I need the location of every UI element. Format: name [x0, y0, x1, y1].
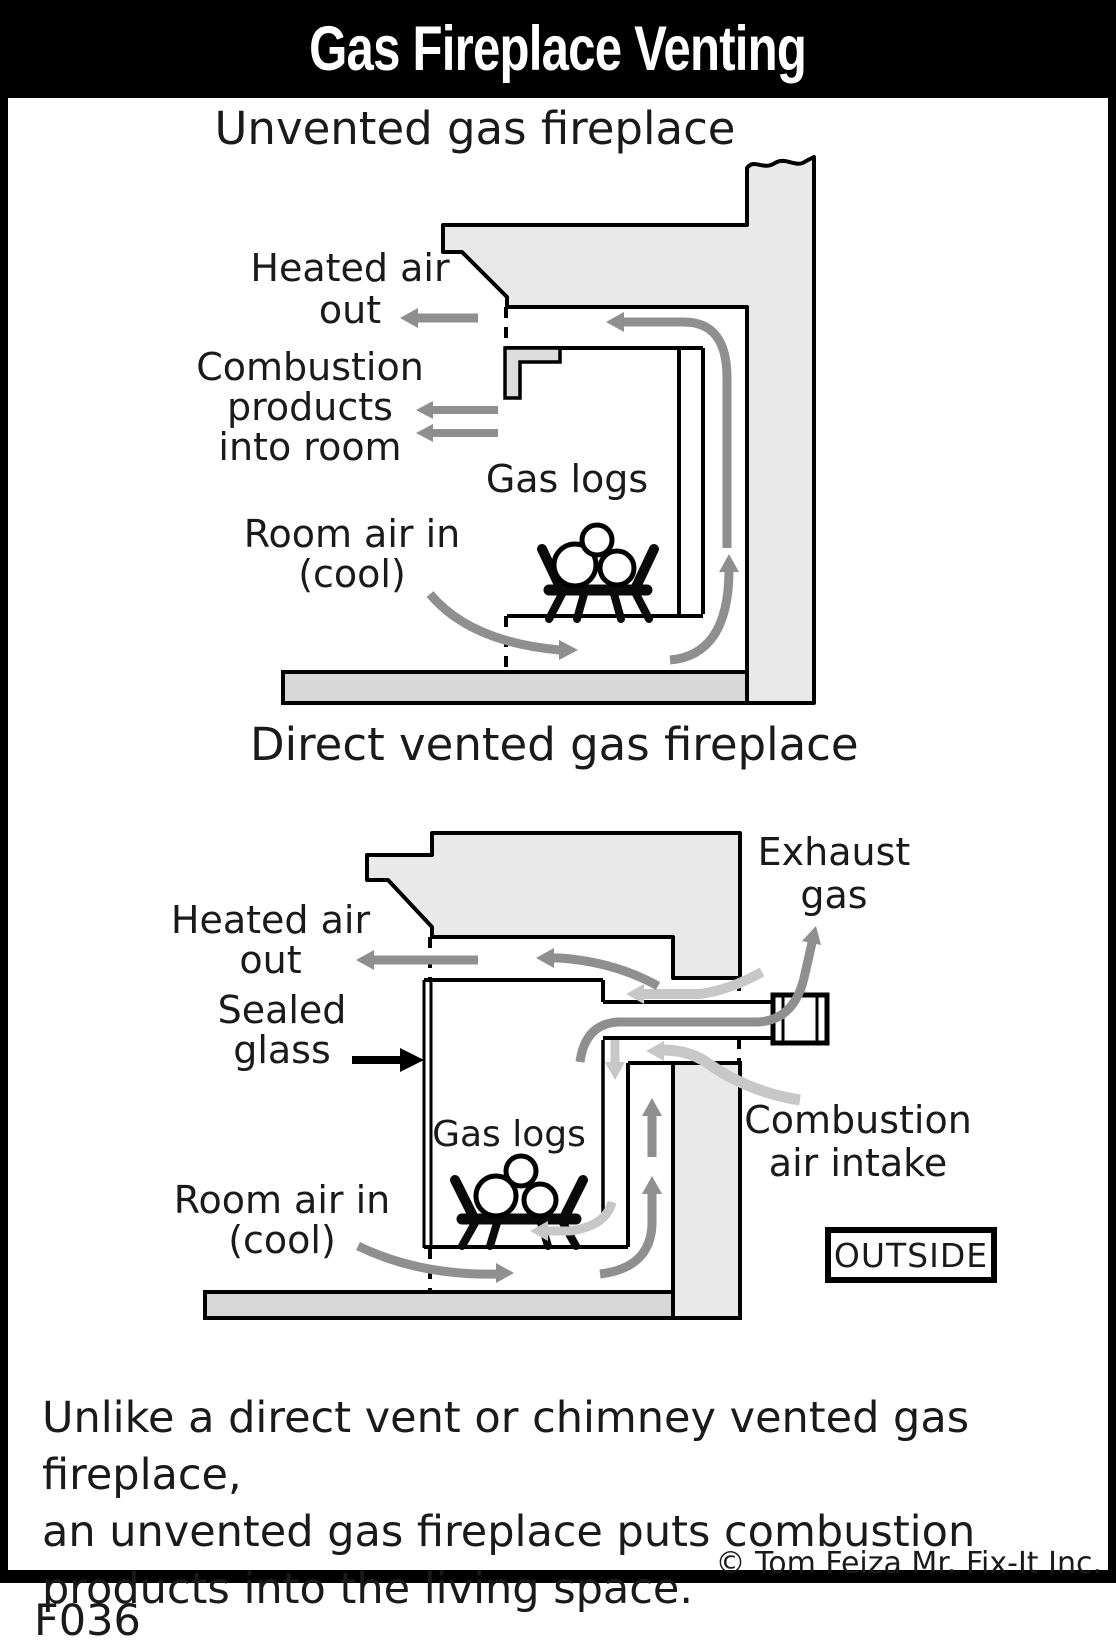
label-exhaust: Exhaust [714, 833, 954, 873]
label-combustion-air: Combustion [738, 1101, 978, 1141]
floor-1 [283, 672, 751, 703]
label-room-air-2: Room air in [172, 1181, 392, 1221]
label-gas-logs-2: Gas logs [399, 1116, 619, 1153]
rising-air-arrow-1 [622, 322, 727, 548]
caption-text: Unlike a direct vent or chimney vented g… [42, 1390, 1072, 1618]
label-heated-air-out-2: out [158, 941, 383, 981]
damper-angle-1 [505, 348, 560, 398]
figure-code: F036 [34, 1596, 141, 1646]
label-room-air-1: Room air in [232, 515, 472, 555]
label-combustion-1: Combustion [190, 348, 430, 388]
label-room-air-cool-2: (cool) [172, 1221, 392, 1261]
label-combustion-products: products [190, 388, 430, 428]
label-gas-logs-1: Gas logs [447, 460, 687, 500]
floor-2 [205, 1292, 673, 1318]
gas-logs-icon [554, 525, 634, 586]
label-combustion-into-room: into room [190, 428, 430, 468]
diagram1-title: Unvented gas fireplace [175, 106, 775, 153]
lower-wall-2 [673, 1063, 740, 1318]
wall-and-soffit-1 [443, 157, 814, 703]
outside-label-box: OUTSIDE [825, 1227, 997, 1283]
room-air-in-arrow-1 [430, 594, 560, 650]
label-heated-air-1: Heated air [230, 249, 470, 289]
diagram2-title: Direct vented gas fireplace [250, 722, 850, 769]
label-sealed-glass: glass [172, 1031, 392, 1071]
title-bar: Gas Fireplace Venting [0, 0, 1116, 98]
label-air-intake: air intake [738, 1144, 978, 1184]
outside-label: OUTSIDE [834, 1236, 988, 1275]
page-title: Gas Fireplace Venting [309, 13, 806, 85]
label-heated-air-2: Heated air [158, 901, 383, 941]
label-exhaust-gas: gas [714, 876, 954, 916]
gas-log-grate-1 [542, 525, 654, 619]
label-sealed: Sealed [172, 991, 392, 1031]
vent-pipe [603, 980, 773, 1038]
gas-logs-icon-2 [476, 1156, 556, 1216]
label-room-air-cool-1: (cool) [232, 555, 472, 595]
caption-line-1: Unlike a direct vent or chimney vented g… [42, 1390, 1072, 1504]
label-heated-air-out-1: out [230, 291, 470, 331]
copyright-text: © Tom Feiza Mr. Fix-It Inc. [480, 1546, 1102, 1581]
